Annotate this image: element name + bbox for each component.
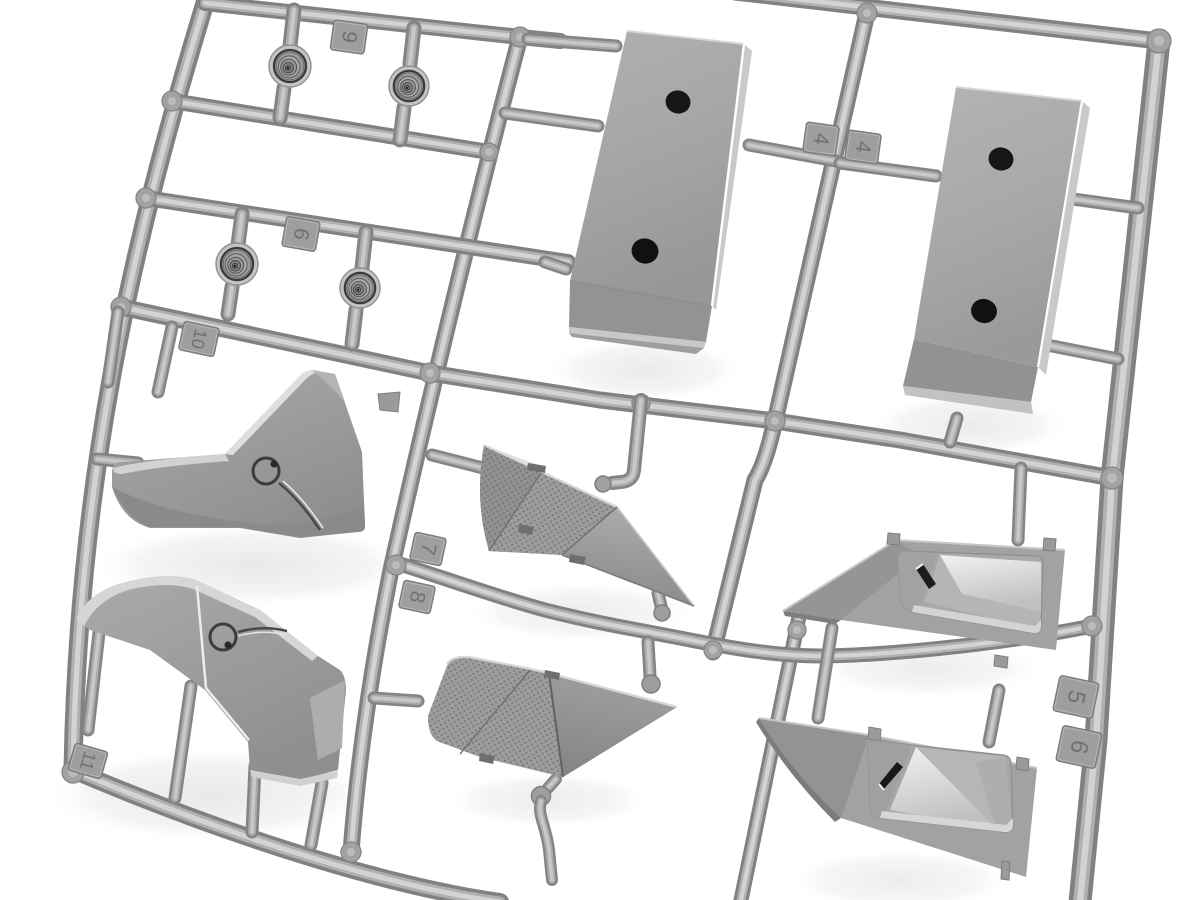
svg-text:10: 10 bbox=[187, 327, 211, 351]
